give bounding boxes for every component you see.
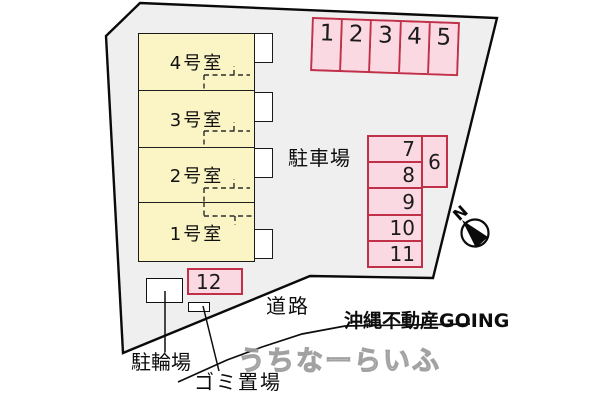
parking-space-6-number: 6 xyxy=(428,150,441,174)
parking-area-label: 駐車場 xyxy=(288,148,351,169)
garbage-area-leader-line xyxy=(203,306,219,371)
room-2: 2号室 xyxy=(139,148,254,203)
parking-space-9-number: 9 xyxy=(402,190,415,214)
parking-space-3-number: 3 xyxy=(378,22,394,48)
garbage-area-label: ゴミ置場 xyxy=(194,372,282,393)
parking-space-9: 9 xyxy=(369,189,421,215)
balcony-room-3 xyxy=(254,92,273,122)
building: 4号室 3号室 2号室 1号室 xyxy=(138,33,255,262)
compass-circle-icon xyxy=(462,220,489,247)
parking-space-7-number: 7 xyxy=(402,137,415,161)
parking-space-11: 11 xyxy=(369,242,421,266)
room-1-label: 1号室 xyxy=(170,220,223,246)
road-label: 道路 xyxy=(266,296,310,317)
room-3: 3号室 xyxy=(139,91,254,148)
garbage-area-structure xyxy=(188,302,210,312)
balcony-room-4 xyxy=(254,33,273,63)
parking-space-10-number: 10 xyxy=(390,216,415,240)
room-3-label: 3号室 xyxy=(170,106,223,132)
room-4: 4号室 xyxy=(139,34,254,91)
parking-space-8-number: 8 xyxy=(402,163,415,187)
parking-space-8: 8 xyxy=(369,163,421,189)
parking-space-2: 2 xyxy=(341,20,372,71)
parking-space-1: 1 xyxy=(312,19,343,70)
north-label: N xyxy=(449,202,472,225)
parking-space-6: 6 xyxy=(421,135,448,188)
company-watermark: 沖縄不動産GOING xyxy=(344,312,509,332)
north-arrow-icon xyxy=(462,220,488,248)
parking-space-7: 7 xyxy=(369,137,421,163)
balcony-room-1 xyxy=(254,229,273,259)
bicycle-parking-label: 駐輪場 xyxy=(131,352,191,373)
north-compass: N xyxy=(449,202,488,248)
property-boundary-layer xyxy=(0,0,600,400)
parking-space-2-number: 2 xyxy=(348,21,364,47)
parking-space-11-number: 11 xyxy=(390,242,415,266)
parking-space-10: 10 xyxy=(369,216,421,242)
room-1: 1号室 xyxy=(139,203,254,263)
parking-space-5-number: 5 xyxy=(436,24,452,50)
parking-space-4: 4 xyxy=(400,22,431,73)
room-2-label: 2号室 xyxy=(170,162,223,188)
parking-column-right: 7 8 9 10 11 xyxy=(367,135,423,268)
parking-space-1-number: 1 xyxy=(319,20,335,46)
parking-space-12: 12 xyxy=(187,268,243,295)
parking-space-3: 3 xyxy=(371,21,402,72)
parking-space-4-number: 4 xyxy=(407,23,423,49)
parking-space-12-number: 12 xyxy=(196,270,221,294)
linework-layer: N xyxy=(0,0,600,400)
parking-space-5: 5 xyxy=(429,23,458,74)
balcony-room-2 xyxy=(254,148,273,178)
site-plan: 4号室 3号室 2号室 1号室 1 2 3 4 5 7 8 9 10 11 6 … xyxy=(0,0,600,400)
room-4-label: 4号室 xyxy=(170,49,223,75)
bicycle-parking-structure xyxy=(146,278,183,303)
parking-row-top: 1 2 3 4 5 xyxy=(310,17,460,76)
